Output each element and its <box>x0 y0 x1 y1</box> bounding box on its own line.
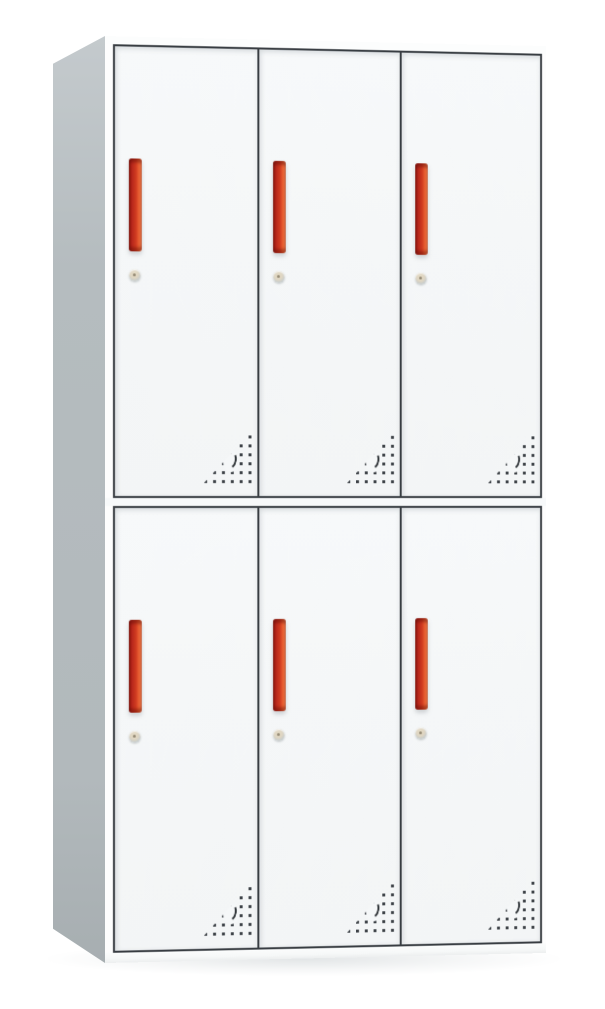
keyhole-lock <box>415 727 427 739</box>
door-handle <box>415 163 428 255</box>
door-handle <box>129 158 142 251</box>
keyhole-lock <box>273 271 285 283</box>
keyhole-lock <box>129 269 141 281</box>
product-photo-locker-cabinet <box>0 0 605 1009</box>
locker-door-top-left <box>115 46 257 496</box>
ventilation-holes <box>199 882 252 941</box>
door-handle <box>273 619 286 711</box>
door-handle <box>129 620 142 713</box>
keyhole-lock <box>415 273 427 285</box>
locker-door-top-right <box>402 53 540 496</box>
ventilation-holes <box>484 431 536 488</box>
row-divider-strip <box>105 498 546 506</box>
cabinet-side-panel <box>53 36 105 963</box>
locker-door-bottom-left <box>115 508 257 951</box>
ventilation-holes <box>199 430 252 488</box>
cabinet-front <box>105 36 546 963</box>
ventilation-holes <box>484 877 536 935</box>
door-row-upper <box>113 44 542 498</box>
keyhole-lock <box>129 731 141 743</box>
door-handle <box>415 618 428 710</box>
locker-door-bottom-right <box>402 508 540 945</box>
locker-door-top-center <box>259 49 399 496</box>
door-row-lower <box>113 506 542 953</box>
ventilation-holes <box>342 431 394 488</box>
door-handle <box>273 161 286 253</box>
ventilation-holes <box>342 880 394 938</box>
keyhole-lock <box>273 729 285 741</box>
locker-door-bottom-center <box>259 508 399 948</box>
